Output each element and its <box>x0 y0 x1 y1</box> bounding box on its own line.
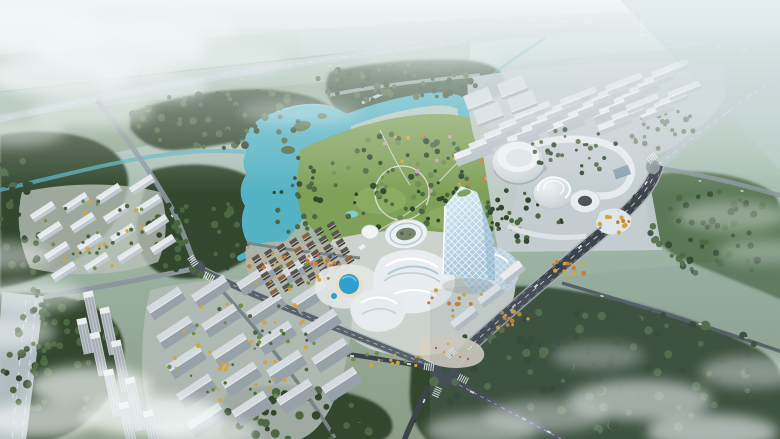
tree <box>248 314 252 318</box>
tree <box>329 264 332 267</box>
tree <box>676 195 683 202</box>
tree <box>166 203 172 209</box>
tree <box>617 231 621 235</box>
tree <box>196 343 201 348</box>
tree <box>279 264 283 268</box>
tree <box>288 288 291 291</box>
tree <box>369 364 372 367</box>
tree <box>495 198 500 203</box>
tree <box>6 209 11 214</box>
tree <box>217 388 220 391</box>
tree <box>175 227 182 234</box>
tree <box>301 319 305 323</box>
tree <box>118 208 122 212</box>
tree <box>346 214 352 220</box>
tree <box>64 207 67 210</box>
tree <box>253 392 256 395</box>
tree <box>183 330 186 333</box>
tree <box>63 313 69 319</box>
tree <box>627 220 630 223</box>
tree <box>670 254 674 258</box>
tree <box>261 265 265 269</box>
tree <box>98 248 100 250</box>
tree <box>271 429 280 438</box>
tree <box>312 342 315 345</box>
tree <box>224 211 232 219</box>
tree <box>234 222 240 228</box>
tree <box>496 228 499 231</box>
tree <box>343 422 350 429</box>
tree <box>42 355 47 360</box>
tree <box>295 411 303 419</box>
tree <box>211 262 218 269</box>
tree <box>268 331 271 334</box>
tree <box>563 262 567 266</box>
tree <box>319 256 322 259</box>
tree <box>192 332 196 336</box>
tree <box>30 269 36 275</box>
tree <box>93 266 97 270</box>
tree <box>415 355 418 358</box>
tree <box>207 238 211 242</box>
tree <box>263 360 267 364</box>
tree <box>305 226 309 230</box>
tree <box>171 196 177 202</box>
podium-swoosh-small <box>350 290 405 332</box>
tree <box>125 204 129 208</box>
tree <box>262 320 267 325</box>
car-windshield <box>408 363 409 365</box>
tree <box>184 218 189 223</box>
tree <box>515 238 520 243</box>
tree <box>225 303 228 306</box>
tree <box>257 340 261 344</box>
aerial-rendering-scene <box>0 0 780 439</box>
tree <box>52 341 57 346</box>
tree <box>581 262 584 265</box>
tree <box>292 303 297 308</box>
tree <box>349 403 354 408</box>
tree <box>686 257 693 264</box>
tree <box>286 339 290 343</box>
tree <box>598 222 603 227</box>
tree <box>501 217 504 220</box>
tree <box>84 211 88 215</box>
tree <box>282 378 287 383</box>
tree <box>224 368 227 371</box>
tree <box>179 262 186 269</box>
tree <box>365 427 373 435</box>
tree <box>327 277 330 280</box>
tree <box>514 233 520 239</box>
tree <box>247 264 251 268</box>
tree <box>190 375 192 377</box>
tree <box>231 363 234 366</box>
tree <box>485 205 490 210</box>
tree <box>363 412 370 419</box>
tree <box>280 329 284 333</box>
tree <box>235 243 240 248</box>
tree <box>333 261 337 265</box>
tree <box>303 221 308 226</box>
tree <box>315 274 319 278</box>
tree <box>277 304 281 308</box>
tree <box>696 195 701 200</box>
tree <box>404 207 408 211</box>
tree <box>218 398 222 402</box>
car-windshield <box>380 359 381 361</box>
tree <box>85 247 89 251</box>
tree <box>410 206 415 211</box>
tree <box>419 356 422 359</box>
tree <box>286 230 290 234</box>
tree <box>51 319 58 326</box>
tree <box>562 269 566 273</box>
tree <box>211 388 215 392</box>
tree <box>375 351 379 355</box>
tree <box>7 352 13 358</box>
tree <box>560 221 564 225</box>
tree <box>221 362 225 366</box>
tree <box>312 214 317 219</box>
tree <box>62 258 66 262</box>
tree <box>620 216 624 220</box>
tree <box>81 199 85 203</box>
tree <box>156 232 162 238</box>
tree <box>88 200 92 204</box>
car-windshield <box>12 395 14 396</box>
tree <box>306 259 310 263</box>
tree <box>552 263 555 266</box>
tree <box>253 330 258 335</box>
tree <box>269 342 272 345</box>
tree <box>486 200 490 204</box>
tree <box>436 219 440 223</box>
tree <box>404 360 407 363</box>
tree <box>57 342 64 349</box>
tree <box>351 357 355 361</box>
tree <box>163 263 168 268</box>
tree <box>314 262 318 266</box>
aerial-rendering-stage <box>0 0 780 439</box>
tree <box>230 253 236 259</box>
tree <box>224 321 227 324</box>
tree <box>731 234 735 238</box>
tree <box>282 332 286 336</box>
tree <box>195 228 201 234</box>
tree <box>390 202 394 206</box>
tree <box>129 228 133 232</box>
tree <box>211 221 219 229</box>
tree <box>650 223 657 230</box>
tree <box>509 218 514 223</box>
tree <box>665 241 672 248</box>
tree <box>304 263 308 267</box>
tree <box>605 215 610 220</box>
tree <box>515 220 521 226</box>
tree <box>173 356 177 360</box>
tree <box>67 346 75 354</box>
tree <box>394 354 397 357</box>
tree <box>16 375 22 381</box>
car-windshield <box>18 357 20 358</box>
tree <box>1 369 6 374</box>
tree <box>688 238 693 243</box>
tree <box>275 208 280 213</box>
tree <box>269 386 272 389</box>
tree <box>414 364 417 367</box>
tree <box>191 194 197 200</box>
tree <box>78 352 83 357</box>
tree <box>81 241 84 244</box>
tree <box>274 321 277 324</box>
tree <box>226 202 230 206</box>
tree <box>396 361 400 365</box>
tree <box>569 262 572 265</box>
tree <box>129 241 133 245</box>
tree <box>258 419 265 426</box>
tree <box>365 353 369 357</box>
tree <box>140 208 144 212</box>
tree <box>301 213 307 219</box>
tree <box>10 387 17 394</box>
tree <box>209 214 215 220</box>
tree <box>117 232 121 236</box>
tree <box>139 226 143 230</box>
tree <box>86 360 92 366</box>
tree <box>304 333 307 336</box>
tree <box>338 263 341 266</box>
tree <box>17 213 21 217</box>
tree <box>58 335 64 341</box>
tree <box>63 319 70 326</box>
tree <box>361 212 365 216</box>
tree <box>110 264 113 267</box>
tree <box>13 200 20 207</box>
tree <box>96 231 99 234</box>
tree <box>105 245 109 249</box>
tree <box>79 252 82 255</box>
tree <box>676 255 683 262</box>
tree <box>305 368 309 372</box>
tree <box>257 335 262 340</box>
tree <box>524 238 530 244</box>
tree <box>271 253 274 256</box>
tree <box>265 427 270 432</box>
tree <box>218 366 223 371</box>
tree <box>265 262 267 264</box>
tree <box>495 222 500 227</box>
tree <box>175 367 177 369</box>
tree <box>330 429 335 434</box>
tree <box>308 264 310 266</box>
tree <box>272 377 274 379</box>
tree <box>275 220 280 225</box>
tree <box>72 252 75 255</box>
tree <box>249 340 253 344</box>
tree <box>297 194 302 199</box>
tree <box>226 363 230 367</box>
tree <box>98 244 101 247</box>
tree <box>555 260 559 264</box>
tree <box>253 347 256 350</box>
tree <box>312 411 321 420</box>
tree <box>341 428 349 436</box>
tree <box>184 204 189 209</box>
tree <box>507 211 511 215</box>
tree <box>703 240 708 245</box>
tree <box>64 328 70 334</box>
tree <box>353 201 356 204</box>
kiddie-pool <box>331 293 337 299</box>
tree <box>208 350 212 354</box>
tree <box>134 208 138 212</box>
tree <box>9 199 13 203</box>
tree <box>213 252 217 256</box>
tree <box>1 226 7 232</box>
tree <box>283 255 287 259</box>
tree <box>304 345 308 349</box>
tree <box>206 391 209 394</box>
tree <box>389 359 392 362</box>
tree <box>167 365 171 369</box>
tree <box>313 196 319 202</box>
tree <box>44 219 47 222</box>
tree <box>13 234 19 240</box>
tree <box>183 239 188 244</box>
tree <box>211 207 216 212</box>
tree <box>86 234 90 238</box>
tree <box>422 204 427 209</box>
tree <box>200 305 204 309</box>
tree <box>261 329 264 332</box>
tree <box>524 206 529 211</box>
tree <box>225 254 230 259</box>
tree <box>350 407 357 414</box>
tree <box>175 246 182 253</box>
tree <box>525 197 531 203</box>
tree <box>12 270 19 277</box>
tree <box>355 423 363 431</box>
tree <box>224 381 227 384</box>
tree <box>217 307 221 311</box>
tree <box>317 278 321 282</box>
tree <box>411 194 416 199</box>
tree <box>217 230 222 235</box>
tree <box>45 312 50 317</box>
tree <box>34 362 39 367</box>
tree <box>289 284 293 288</box>
tree <box>197 271 204 278</box>
tree <box>274 394 278 398</box>
tree <box>96 200 100 204</box>
tree <box>498 205 504 211</box>
tree <box>307 281 311 285</box>
tree <box>305 339 308 342</box>
tree <box>491 221 494 224</box>
dome-pavilion <box>362 225 379 239</box>
tree <box>173 266 179 272</box>
tree <box>51 242 55 246</box>
tree <box>274 262 277 265</box>
tree <box>174 207 181 214</box>
tree <box>384 199 388 203</box>
tree <box>239 304 244 309</box>
tree <box>440 196 444 200</box>
tree <box>254 281 257 284</box>
tree <box>535 213 540 218</box>
tree <box>141 230 144 233</box>
tree <box>125 229 128 232</box>
tree <box>746 230 751 235</box>
tree <box>700 245 704 249</box>
tree <box>111 241 115 245</box>
tree <box>616 220 620 224</box>
tree <box>653 236 659 242</box>
tree <box>269 281 272 284</box>
tree <box>225 266 229 270</box>
tree <box>335 429 341 435</box>
tree <box>391 362 394 365</box>
tree <box>307 255 310 258</box>
tree <box>572 271 576 275</box>
tree <box>572 266 576 270</box>
tree <box>22 235 27 240</box>
tree <box>88 251 91 254</box>
tree <box>269 380 272 383</box>
tree <box>249 388 252 391</box>
tree <box>279 255 283 259</box>
tree <box>195 323 199 327</box>
tree <box>273 360 277 364</box>
tree <box>271 410 277 416</box>
tree <box>622 224 627 229</box>
tree <box>42 348 47 353</box>
tree <box>174 254 181 261</box>
tree <box>95 251 99 255</box>
car-windshield <box>351 355 352 357</box>
tree <box>294 379 297 382</box>
tree <box>427 301 430 304</box>
tree <box>295 224 300 229</box>
tree <box>668 207 673 212</box>
tree <box>45 342 52 349</box>
tree <box>96 203 99 206</box>
tree <box>504 215 509 220</box>
tree <box>647 230 653 236</box>
tree <box>323 404 329 410</box>
tree <box>254 383 257 386</box>
tree <box>327 260 330 263</box>
tree <box>553 269 557 273</box>
